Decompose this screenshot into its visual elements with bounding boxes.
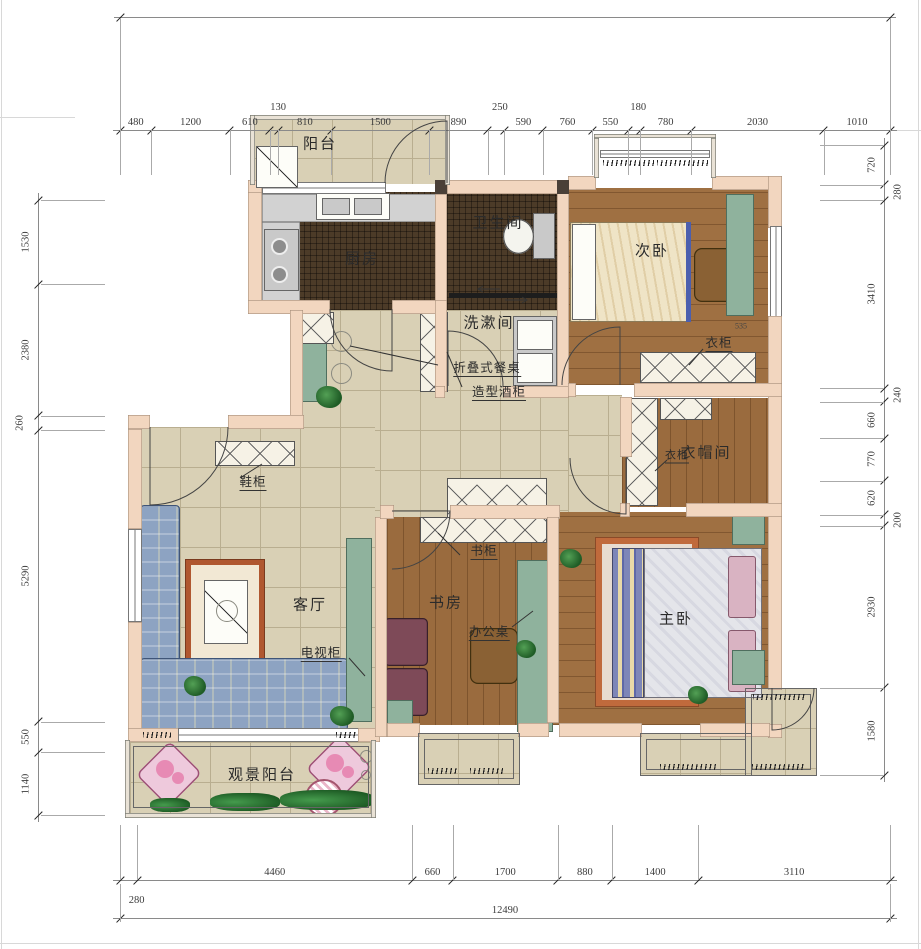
label-wardrobe-size: 535 [735,322,747,331]
room-label-view-balcony: 观景阳台 [228,764,296,785]
label-bookcase: 书柜 [470,540,497,560]
label-wardrobe-bedroom2: 衣柜 [705,332,732,352]
label-shoe-cabinet: 鞋柜 [239,471,266,491]
label-folding-table: 折叠式餐桌 [453,357,521,377]
room-label-balcony: 阳台 [303,133,337,154]
room-label-master: 主卧 [659,608,693,629]
room-label-kitchen: 厨房 [345,248,379,269]
room-label-bathroom: 卫生间 [472,212,523,233]
room-label-bedroom2: 次卧 [635,240,669,261]
label-wine-cabinet: 造型酒柜 [472,381,526,401]
plan-linework [0,0,921,949]
room-label-living: 客厅 [293,594,327,615]
label-tv-cabinet: 电视柜 [301,642,342,662]
floorplan-canvas: 阳台 厨房 卫生间 洗漱间 次卧 衣帽间 客厅 书房 主卧 观景阳台 折叠式餐桌… [0,0,921,949]
room-label-washroom: 洗漱间 [463,312,514,333]
label-wardrobe-cloakroom: 衣柜 [665,447,689,464]
label-office-desk: 办公桌 [469,621,510,641]
leader-lines [240,286,703,676]
room-label-study: 书房 [429,592,463,613]
